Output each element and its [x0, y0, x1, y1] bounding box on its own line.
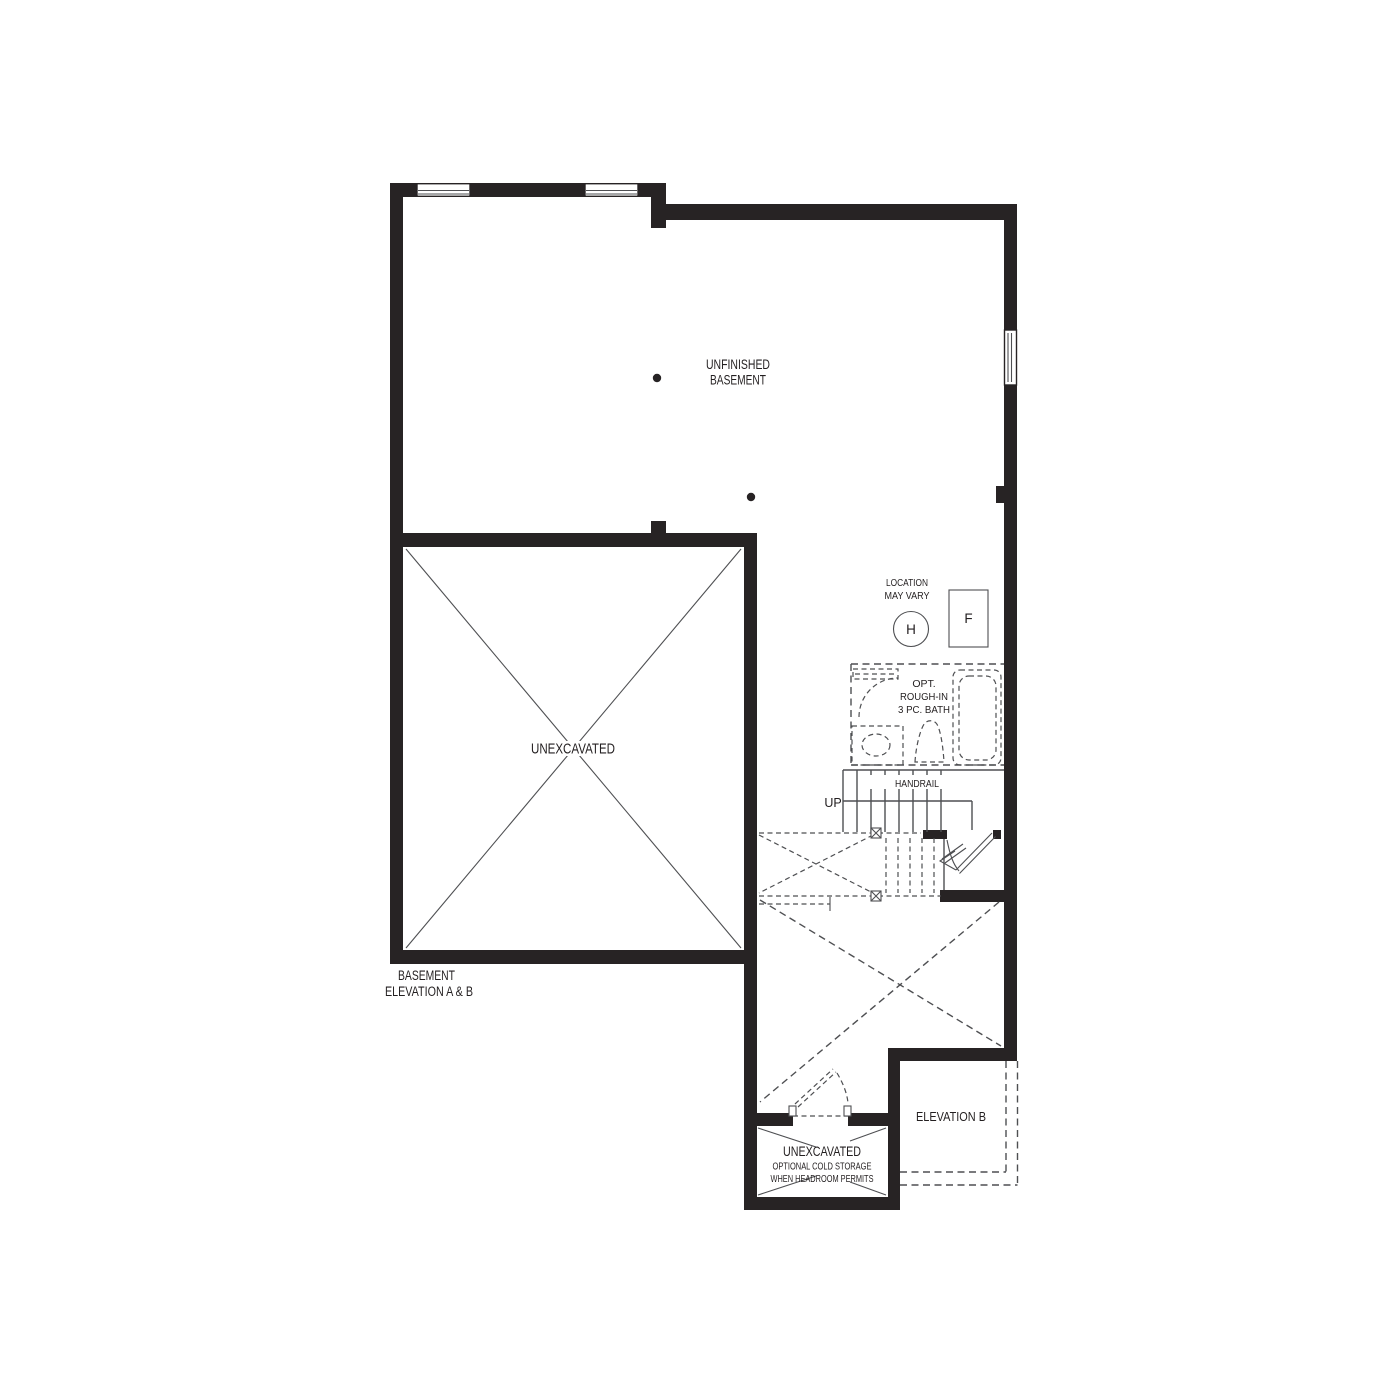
bath-note-label: ROUGH-IN	[900, 691, 948, 703]
bath-bulkhead	[853, 669, 898, 679]
cold-storage-label: WHEN HEADROOM PERMITS	[771, 1173, 874, 1185]
furnace-letter: F	[964, 611, 972, 626]
post-marker	[871, 828, 881, 838]
plan-title: BASEMENT	[398, 968, 455, 983]
bath-door-swing	[859, 678, 898, 717]
basement-floor-plan-drawing: UNFINISHED BASEMENT LOCATION MAY VARY H …	[0, 0, 1400, 1400]
stair-landing-dashed	[759, 828, 941, 911]
up-label: UP	[824, 796, 841, 810]
window-top-right	[585, 184, 638, 197]
location-may-vary-label: MAY VARY	[885, 591, 930, 602]
vanity-sink	[852, 726, 903, 765]
location-may-vary-label: LOCATION	[886, 578, 928, 589]
cold-storage-label: OPTIONAL COLD STORAGE	[773, 1161, 872, 1173]
cold-storage-door	[789, 1069, 851, 1116]
lower-unexcavated-cross	[760, 900, 1001, 1102]
floor-plan-page: UNFINISHED BASEMENT LOCATION MAY VARY H …	[0, 0, 1400, 1400]
bathtub	[953, 670, 1001, 765]
column-dot	[747, 493, 755, 501]
window-top-left	[417, 184, 470, 197]
handrail-label: HANDRAIL	[895, 778, 939, 790]
window-right-wall	[1005, 330, 1017, 385]
elevation-b-label: ELEVATION B	[916, 1109, 986, 1124]
stair-door-swing	[947, 833, 996, 874]
cold-storage-label: UNEXCAVATED	[783, 1143, 861, 1159]
handrail-line	[843, 801, 972, 830]
toilet	[915, 721, 944, 762]
column-dot	[653, 374, 661, 382]
bath-note-label: OPT.	[912, 678, 935, 690]
hot-water-tank-letter: H	[906, 622, 916, 637]
post-marker	[871, 891, 881, 901]
bath-note-label: 3 PC. BATH	[898, 704, 950, 716]
unfinished-basement-label: UNFINISHED	[706, 357, 770, 372]
unexcavated-label: UNEXCAVATED	[531, 741, 615, 758]
plan-title: ELEVATION A & B	[385, 984, 473, 999]
unfinished-basement-label: BASEMENT	[710, 373, 766, 388]
